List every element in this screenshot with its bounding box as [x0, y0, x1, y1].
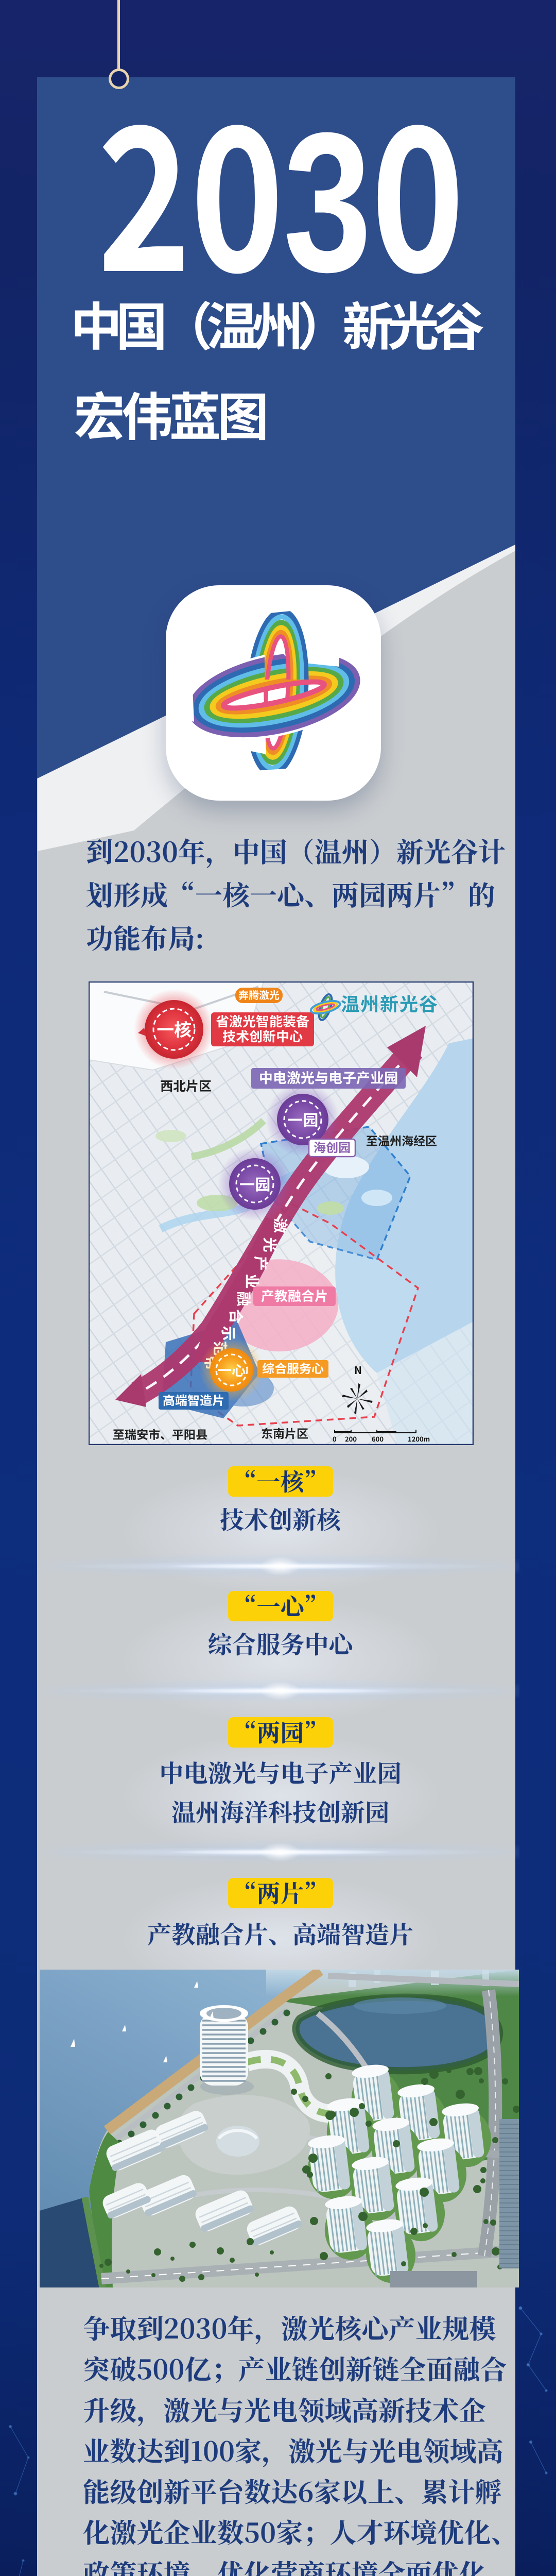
- svg-text:一园: 一园: [239, 1172, 270, 1195]
- svg-text:温州新光谷: 温州新光谷: [341, 990, 439, 1016]
- svg-text:东南片区: 东南片区: [261, 1424, 308, 1442]
- svg-text:至温州海经区: 至温州海经区: [366, 1131, 437, 1149]
- svg-text:技术创新中心: 技术创新中心: [222, 1026, 303, 1045]
- svg-text:600: 600: [372, 1434, 384, 1444]
- svg-text:产: 产: [251, 1256, 272, 1270]
- svg-text:融: 融: [234, 1291, 255, 1306]
- svg-text:奔腾激光: 奔腾激光: [238, 987, 280, 1002]
- svg-text:1200m: 1200m: [408, 1434, 430, 1444]
- svg-text:合: 合: [226, 1309, 248, 1324]
- svg-text:0: 0: [333, 1434, 337, 1444]
- svg-text:高端智造片: 高端智造片: [163, 1391, 224, 1409]
- svg-text:一园: 一园: [287, 1108, 318, 1130]
- svg-text:综合服务心: 综合服务心: [262, 1359, 324, 1377]
- svg-text:激: 激: [270, 1218, 292, 1233]
- svg-text:海创园: 海创园: [314, 1138, 351, 1156]
- svg-text:至瑞安市、平阳县: 至瑞安市、平阳县: [113, 1425, 207, 1443]
- svg-text:西北片区: 西北片区: [160, 1076, 212, 1095]
- svg-text:光: 光: [260, 1237, 282, 1252]
- svg-text:产教融合片: 产教融合片: [261, 1286, 328, 1305]
- svg-text:一心: 一心: [218, 1360, 246, 1380]
- svg-text:一核: 一核: [157, 1016, 192, 1041]
- svg-text:中电激光与电子产业园: 中电激光与电子产业园: [259, 1067, 398, 1087]
- svg-text:N: N: [354, 1362, 362, 1377]
- svg-text:200: 200: [345, 1434, 357, 1444]
